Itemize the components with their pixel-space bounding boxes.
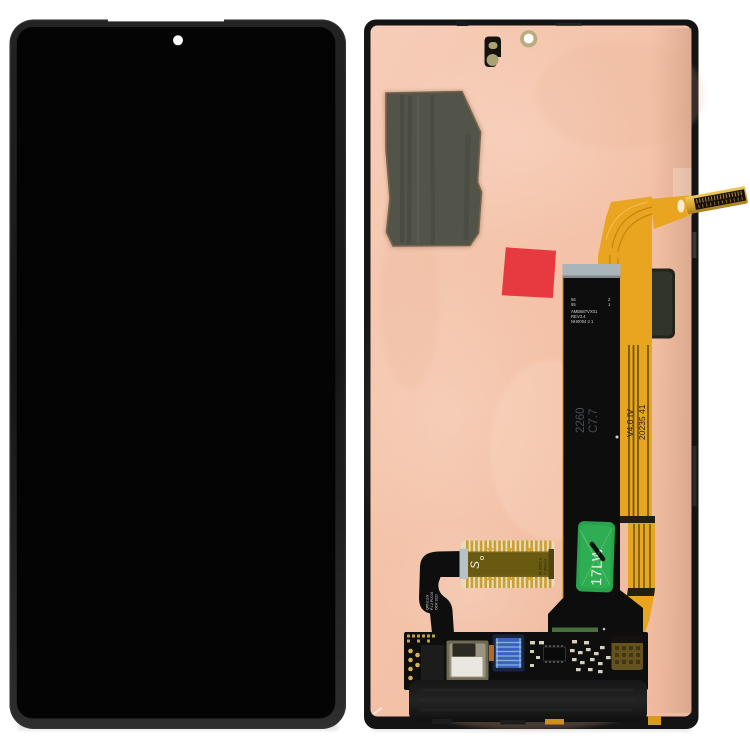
svg-text:20235 41: 20235 41 — [637, 404, 647, 440]
svg-text:C7.7: C7.7 — [588, 409, 600, 433]
svg-text:OCR 1620: OCR 1620 — [435, 594, 439, 610]
svg-text:7.34V0.3: 7.34V0.3 — [543, 558, 548, 575]
svg-text:NH0004 2 1: NH0004 2 1 — [571, 319, 594, 324]
svg-text:V4.0 IV: V4.0 IV — [625, 409, 635, 437]
svg-text:55: 55 — [571, 302, 576, 307]
svg-text:2260: 2260 — [575, 407, 587, 433]
svg-text:S: S — [468, 561, 482, 569]
svg-text:QRN111G: QRN111G — [426, 594, 430, 610]
svg-text:P1.2 PU019: P1.2 PU019 — [430, 592, 434, 610]
